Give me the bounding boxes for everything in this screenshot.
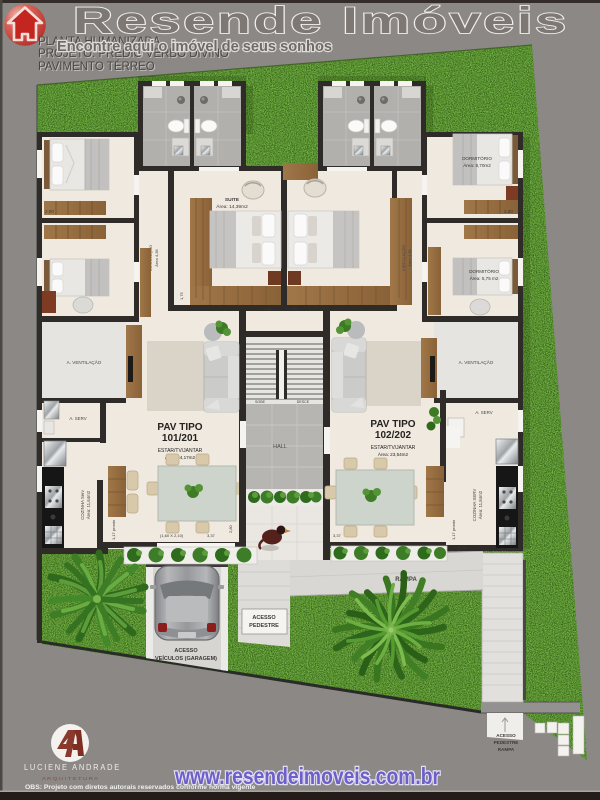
svg-text:A. SERV: A. SERV xyxy=(69,416,86,421)
svg-text:HALL: HALL xyxy=(273,444,287,450)
svg-text:Área 4,38: Área 4,38 xyxy=(154,249,159,267)
svg-text:Área: 11,64m2: Área: 11,64m2 xyxy=(86,490,91,519)
svg-text:Área: 11,84m2: Área: 11,84m2 xyxy=(478,490,483,519)
svg-text:Área: 23,54m2: Área: 23,54m2 xyxy=(378,451,409,457)
svg-text:2,00: 2,00 xyxy=(45,209,54,214)
svg-text:Área: 8,70m2: Área: 8,70m2 xyxy=(463,162,491,168)
svg-text:COZINHA Serv: COZINHA Serv xyxy=(80,489,85,520)
svg-text:A R Q U I T E T U R A: A R Q U I T E T U R A xyxy=(42,776,99,781)
svg-text:Área: 5,75 m2: Área: 5,75 m2 xyxy=(470,275,499,281)
svg-text:DORMITÓRIO: DORMITÓRIO xyxy=(462,155,492,161)
svg-text:(1,60 X 2,10): (1,60 X 2,10) xyxy=(160,533,184,538)
svg-text:2,00: 2,00 xyxy=(504,209,513,214)
svg-text:ACESSO: ACESSO xyxy=(496,733,516,738)
svg-text:102/202: 102/202 xyxy=(375,430,412,441)
svg-text:3,85: 3,85 xyxy=(263,306,272,311)
svg-text:CIRCULAÇÃO: CIRCULAÇÃO xyxy=(401,245,406,271)
svg-text:RAMPA: RAMPA xyxy=(498,747,515,752)
svg-text:PEDESTRE: PEDESTRE xyxy=(249,623,279,629)
svg-text:A. VENTILAÇÃO: A. VENTILAÇÃO xyxy=(459,359,494,365)
svg-text:Encontre aqui o imóvel de seus: Encontre aqui o imóvel de seus sonhos xyxy=(57,39,332,55)
svg-text:Área: 14,39m2: Área: 14,39m2 xyxy=(216,203,248,210)
svg-text:DESCE: DESCE xyxy=(297,400,310,404)
svg-text:PAVIMENTO TÉRREO: PAVIMENTO TÉRREO xyxy=(38,60,155,73)
svg-text:ESTAR/TV/JANTAR: ESTAR/TV/JANTAR xyxy=(158,448,203,454)
svg-text:ACESSO: ACESSO xyxy=(252,615,276,621)
svg-text:Resende Imóveis: Resende Imóveis xyxy=(73,0,569,41)
svg-text:A. SERV: A. SERV xyxy=(475,410,492,415)
svg-text:101/201: 101/201 xyxy=(162,433,199,444)
svg-text:DORMITÓRIO: DORMITÓRIO xyxy=(469,268,499,274)
svg-text:2,80: 2,80 xyxy=(228,524,233,533)
svg-text:ACESSO: ACESSO xyxy=(174,648,198,654)
svg-text:Área 4,38: Área 4,38 xyxy=(407,249,412,267)
svg-text:PAV TIPO: PAV TIPO xyxy=(157,422,202,433)
svg-text:2,39: 2,39 xyxy=(458,545,467,550)
svg-text:www.resendeimoveis.com.br: www.resendeimoveis.com.br xyxy=(174,763,440,789)
svg-text:ESTAR/TV/JANTAR: ESTAR/TV/JANTAR xyxy=(371,445,416,451)
svg-text:3,37: 3,37 xyxy=(207,533,216,538)
svg-text:SUITE: SUITE xyxy=(225,197,240,203)
svg-text:A. VENTILAÇÃO: A. VENTILAÇÃO xyxy=(67,359,102,365)
svg-text:COZINHA SERV: COZINHA SERV xyxy=(472,489,477,522)
svg-text:3,37: 3,37 xyxy=(333,533,342,538)
svg-text:LUCIENE ANDRADE: LUCIENE ANDRADE xyxy=(24,762,121,772)
svg-text:3,60: 3,60 xyxy=(290,306,299,311)
svg-text:1,17 pronto: 1,17 pronto xyxy=(111,519,116,540)
svg-text:SOBE: SOBE xyxy=(255,400,266,404)
svg-text:PEDESTRE: PEDESTRE xyxy=(494,740,519,745)
svg-text:1,75: 1,75 xyxy=(179,291,184,300)
svg-text:PAV TIPO: PAV TIPO xyxy=(370,419,415,430)
svg-text:VEÍCULOS (GARAGEM): VEÍCULOS (GARAGEM) xyxy=(155,654,217,662)
svg-text:1,17 pronto: 1,17 pronto xyxy=(451,519,456,540)
